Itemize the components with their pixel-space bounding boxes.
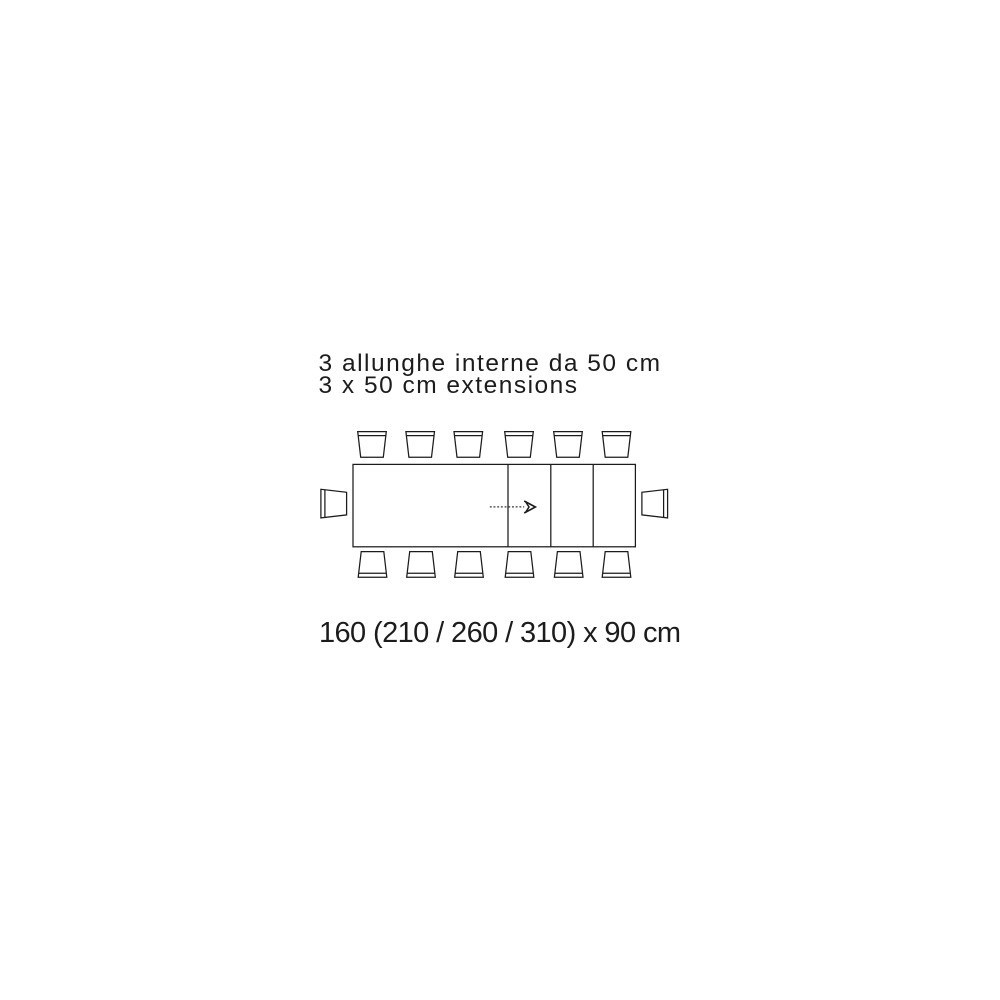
svg-text:160 (210 / 260 / 310) x 90 cm: 160 (210 / 260 / 310) x 90 cm <box>319 617 681 649</box>
svg-text:3 x 50 cm extensions: 3 x 50 cm extensions <box>319 372 578 399</box>
